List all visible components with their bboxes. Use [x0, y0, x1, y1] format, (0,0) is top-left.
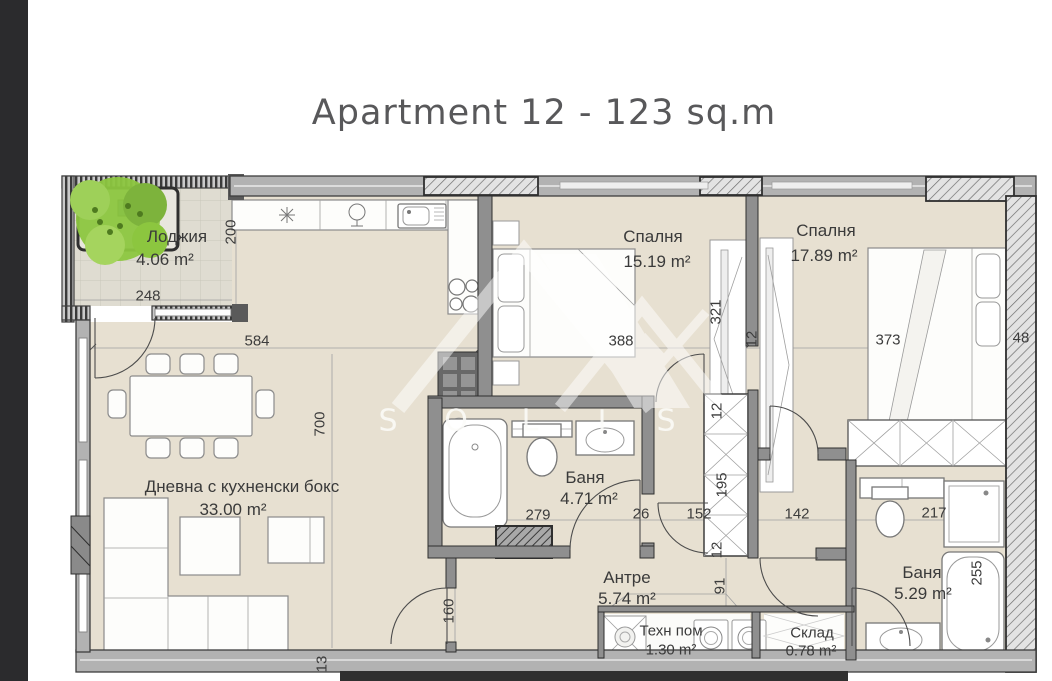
- bedroom2-name-label: Спалня: [796, 221, 855, 241]
- wall-niche: [71, 516, 90, 574]
- shower-symbol: [944, 481, 1004, 547]
- closet-symbol-bedroom2: [848, 420, 1006, 466]
- dim-bath1-wall: 26: [633, 506, 650, 523]
- cooker-hood-icon: [279, 207, 295, 223]
- window-bedroom2: [772, 182, 912, 189]
- bath2-area-label: 5.29 m²: [894, 584, 952, 604]
- dim-closet-height: 195: [714, 472, 731, 497]
- tech-name-label: Техн пом: [639, 623, 702, 640]
- dim-hall-mid: 91: [712, 578, 729, 595]
- bedroom2-area-label: 17.89 m²: [790, 246, 857, 266]
- dim-living-height: 700: [312, 411, 329, 436]
- watermark-letter: L: [522, 404, 539, 439]
- bedroom1-name-label: Спалня: [623, 227, 682, 247]
- dim-bath1-width: 279: [525, 507, 550, 524]
- watermark-letter: S: [656, 404, 675, 439]
- loggia-name-label: Лоджия: [147, 227, 207, 247]
- dim-bedroom1-width: 388: [608, 333, 633, 350]
- dim-wall-bedrooms: 12: [744, 331, 761, 348]
- bath2-name-label: Баня: [902, 563, 941, 583]
- watermark-letter: I: [598, 405, 607, 440]
- dim-living-wall: 13: [314, 656, 331, 673]
- bath1-name-label: Баня: [565, 468, 604, 488]
- hall-area-label: 5.74 m²: [598, 589, 656, 609]
- dim-corridor-right: 142: [784, 506, 809, 523]
- armchair-symbol: [268, 517, 324, 563]
- bedroom1-area-label: 15.19 m²: [623, 252, 690, 272]
- nightstand-symbol: [493, 221, 519, 245]
- dim-loggia-height: 200: [223, 219, 240, 244]
- dim-bath2-width: 217: [921, 505, 946, 522]
- dim-bedroom1-height: 321: [708, 299, 725, 324]
- window-bedroom1: [560, 182, 708, 189]
- coffee-table-symbol: [180, 517, 240, 575]
- dim-closet-wall-top: 12: [709, 403, 726, 420]
- storage-area-label: 0.78 m²: [786, 643, 837, 660]
- tech-area-label: 1.30 m²: [646, 642, 697, 659]
- bath1-area-label: 4.71 m²: [560, 489, 618, 509]
- loggia-area-label: 4.06 m²: [136, 250, 194, 270]
- hall-name-label: Антре: [603, 568, 650, 588]
- nightstand-symbol: [493, 361, 519, 385]
- sink-symbol: [398, 204, 446, 228]
- loggia-window: [155, 309, 231, 316]
- dim-loggia-width: 248: [135, 288, 160, 305]
- window-living: [79, 570, 87, 632]
- dim-living-width: 584: [244, 333, 269, 350]
- storage-name-label: Склад: [790, 625, 833, 642]
- dim-bedroom2-width: 373: [875, 332, 900, 349]
- dim-corridor-left: 152: [686, 506, 711, 523]
- watermark-letter: O: [444, 404, 468, 439]
- living-area-label: 33.00 m²: [199, 500, 266, 520]
- dim-hall-left: 160: [441, 598, 458, 623]
- watermark-letter: S: [378, 404, 397, 439]
- dim-right-wall: 48: [1013, 330, 1030, 347]
- dim-closet-wall-bottom: 12: [709, 542, 726, 559]
- window-living: [79, 338, 87, 442]
- living-name-label: Дневна с кухненски бокс: [145, 477, 340, 497]
- screenshot-root: Apartment 12 - 123 sq.m: [0, 0, 1052, 681]
- dim-bath2-height: 255: [969, 560, 986, 585]
